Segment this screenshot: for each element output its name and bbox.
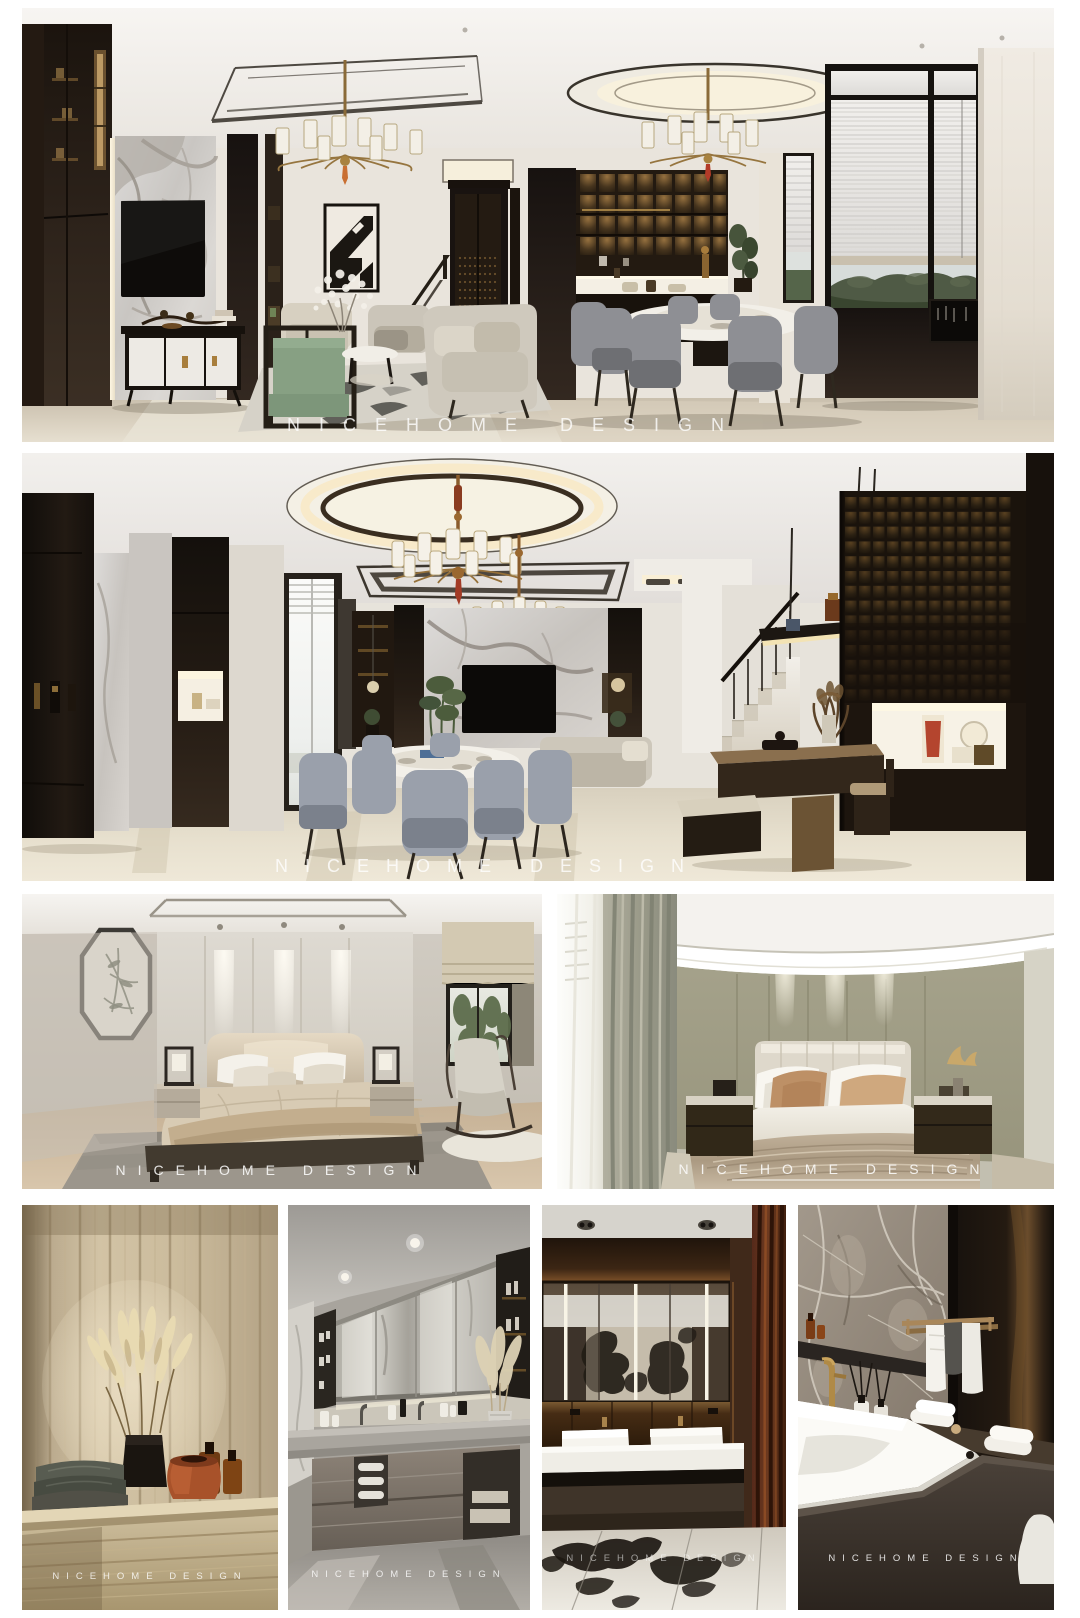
- svg-text:NICEHOME DESIGN: NICEHOME DESIGN: [287, 415, 743, 435]
- svg-text:NICEHOME DESIGN: NICEHOME DESIGN: [828, 1553, 1023, 1564]
- svg-text:NICEHOME DESIGN: NICEHOME DESIGN: [566, 1553, 761, 1564]
- svg-text:NICEHOME DESIGN: NICEHOME DESIGN: [275, 856, 701, 876]
- svg-text:NICEHOME DESIGN: NICEHOME DESIGN: [52, 1571, 247, 1582]
- svg-text:NICEHOME DESIGN: NICEHOME DESIGN: [115, 1162, 428, 1178]
- svg-text:NICEHOME DESIGN: NICEHOME DESIGN: [311, 1569, 506, 1580]
- svg-text:NICEHOME DESIGN: NICEHOME DESIGN: [678, 1161, 991, 1177]
